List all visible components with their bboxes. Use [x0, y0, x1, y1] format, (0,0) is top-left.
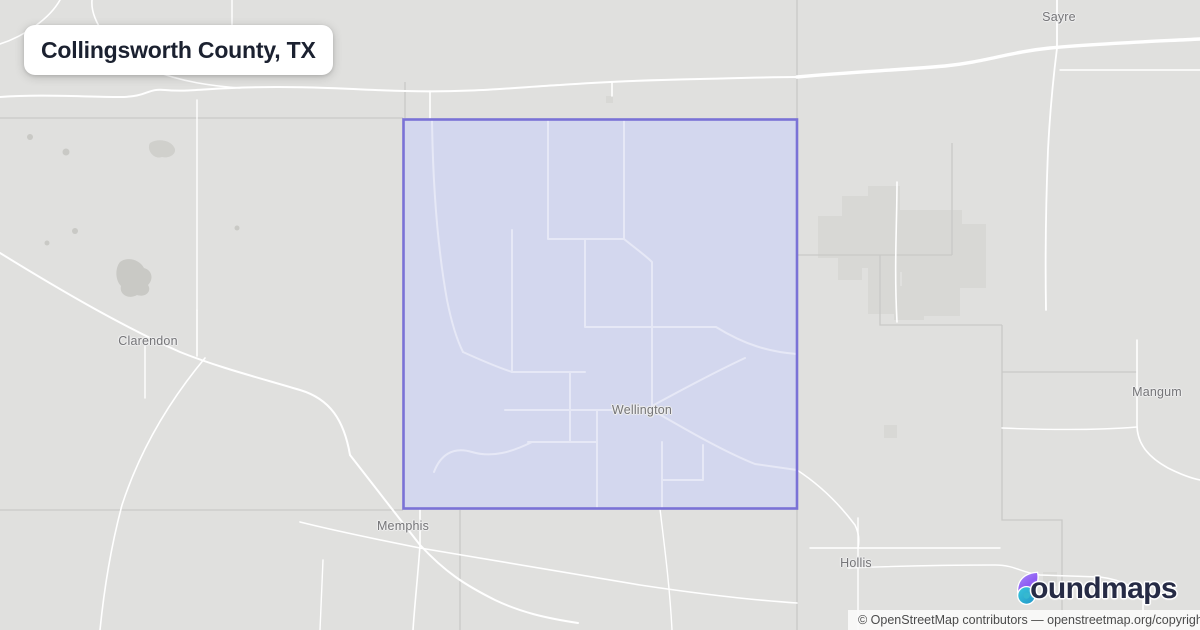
- attribution-bar: © OpenStreetMap contributors — openstree…: [848, 610, 1200, 630]
- title-card: Collingsworth County, TX: [24, 25, 333, 75]
- map-canvas: [0, 0, 1200, 630]
- city-label-wellington: Wellington: [612, 403, 672, 417]
- city-label-hollis: Hollis: [840, 556, 872, 570]
- page-title: Collingsworth County, TX: [41, 37, 316, 64]
- attribution-text: © OpenStreetMap contributors — openstree…: [858, 613, 1200, 627]
- boundmaps-wordmark: oundmaps: [1030, 571, 1177, 607]
- city-label-sayre: Sayre: [1042, 10, 1076, 24]
- boundmaps-logo: oundmaps: [1030, 571, 1177, 607]
- city-label-memphis: Memphis: [377, 519, 429, 533]
- city-label-clarendon: Clarendon: [118, 334, 177, 348]
- city-label-mangum: Mangum: [1132, 385, 1182, 399]
